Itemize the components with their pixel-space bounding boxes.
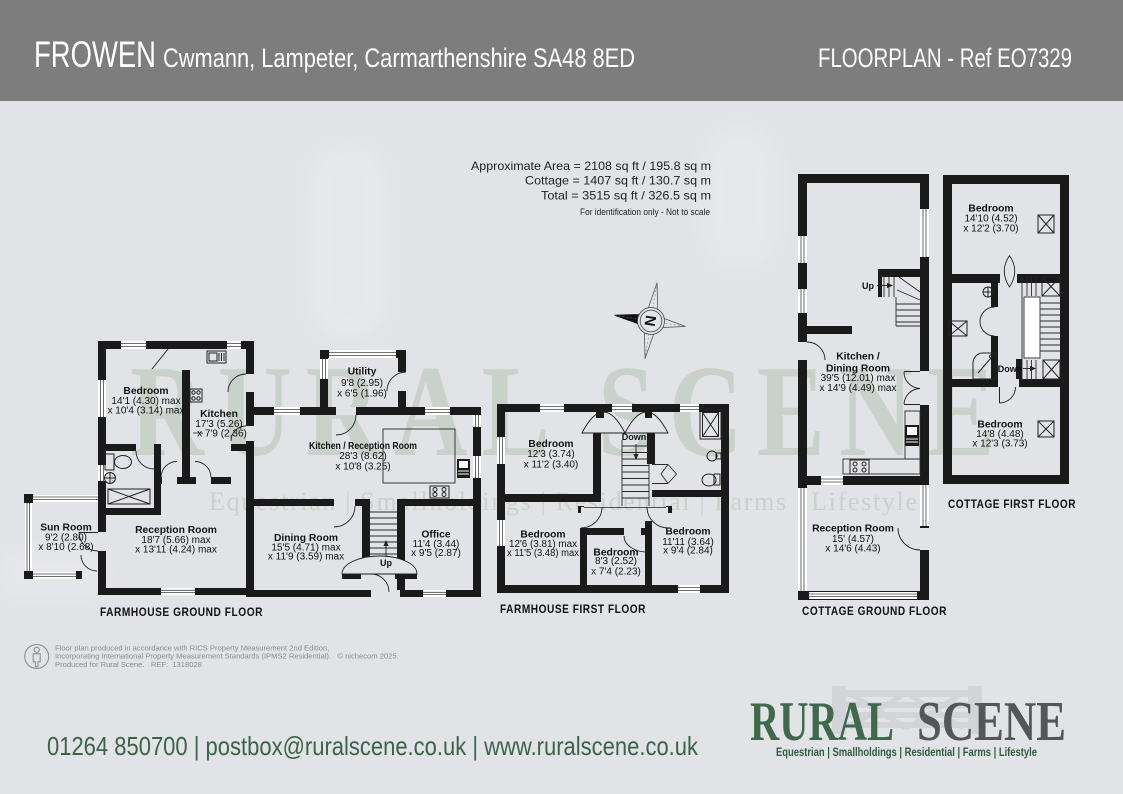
- svg-text:Equestrian | Smallholdings | R: Equestrian | Smallholdings | Residential…: [776, 745, 1037, 759]
- svg-text:x 6'5 (1.96): x 6'5 (1.96): [337, 388, 387, 399]
- svg-text:Up: Up: [380, 558, 392, 568]
- svg-text:x 14'6 (4.43): x 14'6 (4.43): [825, 544, 880, 555]
- svg-text:01264 850700 | postbox@ruralsc: 01264 850700 | postbox@ruralscene.co.uk …: [47, 731, 699, 761]
- svg-text:FLOORPLAN - Ref EO7329: FLOORPLAN - Ref EO7329: [818, 43, 1072, 73]
- svg-text:x 12'2 (3.70): x 12'2 (3.70): [963, 224, 1018, 235]
- svg-text:x 10'4 (3.14) max: x 10'4 (3.14) max: [108, 406, 185, 417]
- svg-text:Reception Room: Reception Room: [812, 524, 894, 535]
- svg-text:x 10'8 (3.25): x 10'8 (3.25): [335, 461, 390, 472]
- svg-text:Down: Down: [622, 432, 647, 442]
- svg-text:FROWEN: FROWEN: [34, 34, 156, 75]
- svg-text:COTTAGE FIRST FLOOR: COTTAGE FIRST FLOOR: [948, 499, 1076, 511]
- svg-text:RURAL: RURAL: [750, 691, 894, 753]
- svg-text:x 14'9 (4.49) max: x 14'9 (4.49) max: [820, 383, 897, 394]
- svg-text:SCENE: SCENE: [917, 691, 1066, 753]
- svg-text:x 12'3 (3.73): x 12'3 (3.73): [972, 439, 1027, 450]
- svg-text:x 9'5 (2.87): x 9'5 (2.87): [411, 548, 461, 559]
- svg-text:Total = 3515 sq ft / 326.5 sq: Total = 3515 sq ft / 326.5 sq m: [541, 189, 711, 202]
- svg-text:28'3 (8.62): 28'3 (8.62): [339, 451, 387, 462]
- svg-text:Cottage = 1407 sq ft / 130.7 s: Cottage = 1407 sq ft / 130.7 sq m: [525, 175, 711, 188]
- svg-text:Cwmann, Lampeter, Carmarthensh: Cwmann, Lampeter, Carmarthenshire SA48 8…: [163, 43, 635, 73]
- svg-text:x 9'4 (2.84): x 9'4 (2.84): [663, 545, 713, 556]
- svg-text:Approximate Area = 2108 sq ft: Approximate Area = 2108 sq ft / 195.8 sq…: [471, 160, 711, 173]
- svg-text:x 11'2 (3.40): x 11'2 (3.40): [524, 459, 579, 470]
- svg-text:Down: Down: [998, 364, 1023, 374]
- svg-text:Kitchen /: Kitchen /: [836, 352, 880, 363]
- svg-text:Up: Up: [862, 281, 874, 291]
- svg-text:x 11'5 (3.48) max: x 11'5 (3.48) max: [507, 548, 579, 559]
- svg-text:Produced for Rural Scene. RE: Produced for Rural Scene. REF: 1318028: [55, 660, 202, 669]
- svg-text:FARMHOUSE FIRST FLOOR: FARMHOUSE FIRST FLOOR: [500, 604, 646, 616]
- svg-text:Utility: Utility: [348, 367, 377, 378]
- svg-text:Bedroom: Bedroom: [665, 527, 710, 538]
- svg-text:x 7'9 (2.36): x 7'9 (2.36): [197, 429, 247, 440]
- svg-text:x 7'4 (2.23): x 7'4 (2.23): [591, 567, 641, 578]
- svg-text:For identification only - Not: For identification only - Not to scale: [580, 207, 710, 217]
- svg-text:COTTAGE GROUND FLOOR: COTTAGE GROUND FLOOR: [802, 606, 947, 618]
- svg-text:x 8'10 (2.68): x 8'10 (2.68): [38, 542, 93, 553]
- svg-text:x 13'11 (4.24) max: x 13'11 (4.24) max: [135, 545, 217, 556]
- svg-text:9'8 (2.95): 9'8 (2.95): [341, 378, 383, 389]
- svg-text:8'3 (2.52): 8'3 (2.52): [595, 556, 637, 567]
- svg-text:x 11'9 (3.59) max: x 11'9 (3.59) max: [268, 552, 344, 563]
- svg-text:FARMHOUSE GROUND FLOOR: FARMHOUSE GROUND FLOOR: [100, 607, 263, 619]
